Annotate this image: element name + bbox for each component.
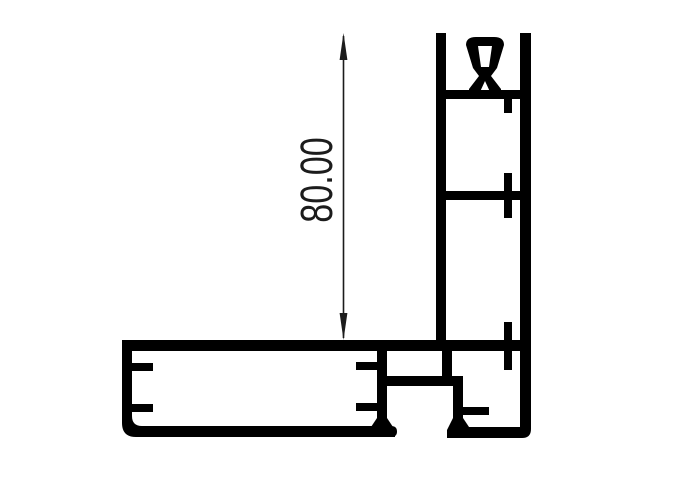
technical-drawing-profile-section: 80.00 [0, 0, 700, 491]
step-inner-stub [463, 407, 489, 415]
horizontal-profile-right-wall [377, 351, 387, 427]
dimension-value-label: 80.00 [293, 137, 343, 223]
vertical-profile-left-wall [436, 33, 446, 351]
step-lower-wall [453, 376, 463, 422]
rail-left-tick-upper [132, 363, 153, 371]
step-lip [387, 376, 453, 386]
rail-right-tick-lower [356, 403, 377, 411]
horizontal-profile-top-flange [122, 340, 531, 351]
dimension-line [343, 36, 345, 338]
rail-left-tick-lower [132, 404, 153, 412]
drawing-canvas: 80.00 [0, 0, 700, 491]
vertical-profile-top-web [446, 90, 520, 99]
rail-right-tick-upper [356, 362, 377, 370]
drawing-background [0, 0, 700, 491]
screw-port-tick-middle [504, 173, 512, 218]
screw-port-tick-top [504, 98, 512, 113]
